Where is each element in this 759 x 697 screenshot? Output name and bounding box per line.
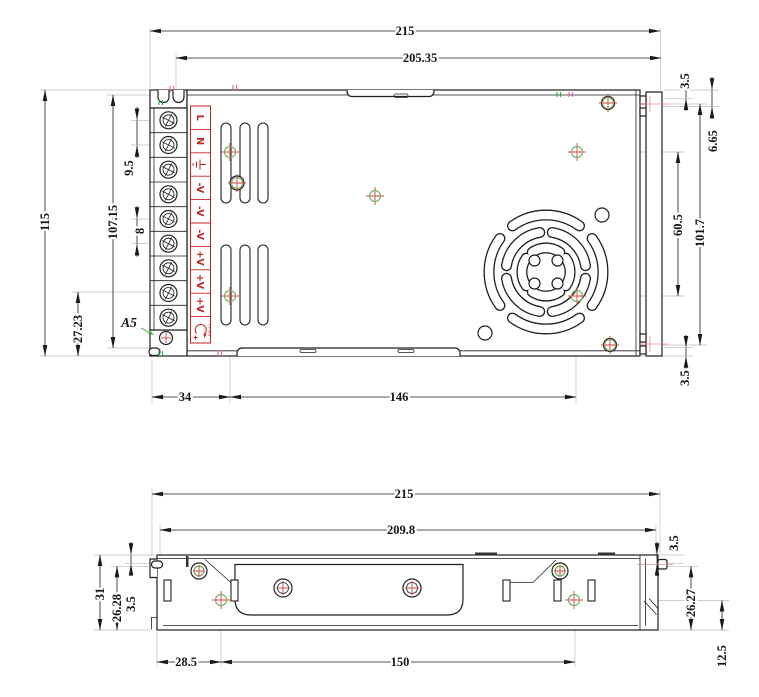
terminal-label-N: N	[194, 137, 205, 145]
terminal-block	[150, 108, 187, 330]
dim-overall-width-side: 215	[395, 487, 414, 501]
dim-bottom-offset-side: 28.5	[175, 655, 197, 669]
cover-tab	[598, 553, 615, 556]
dim-right-notch: 3.5	[667, 535, 681, 551]
callout-a5: A5	[120, 315, 137, 330]
cover-edge-mark	[186, 556, 189, 567]
dim-left-notch: 3.5	[124, 596, 138, 612]
dim-right-notch-top: 3.5	[678, 73, 692, 89]
technical-drawing-canvas: L N -V -V -V +V +V +V +V ADJ	[0, 0, 759, 697]
terminal-label-vminus: -V	[194, 229, 205, 240]
adjust-label: +V ADJ	[208, 324, 212, 337]
dim-input-pitch: 9.5	[122, 160, 136, 176]
dim-top-hole-offset: 6.65	[706, 130, 720, 152]
dim-mount-width-side: 209.8	[387, 523, 415, 537]
chassis-outline-side	[150, 553, 673, 631]
terminal-label-vplus: +V	[194, 274, 205, 290]
mount-notch	[158, 90, 169, 103]
end-panel-tab	[640, 108, 646, 116]
side-slot	[231, 580, 238, 601]
dim-mount-width: 205.35	[403, 51, 437, 65]
side-slot	[164, 580, 171, 601]
side-slot	[588, 580, 595, 601]
end-panel-tab	[640, 96, 646, 104]
dim-right-offset: 12.5	[715, 645, 729, 667]
dim-output-pitch: 8	[133, 228, 147, 234]
side-slot	[503, 580, 510, 601]
side-view: 215 209.8 31 26.28 3.5 3.5 26.27 12.5 28…	[93, 487, 729, 669]
top-view: L N -V -V -V +V +V +V +V ADJ	[38, 24, 720, 404]
end-panel-tab	[640, 346, 646, 354]
terminal-label-L: L	[194, 115, 205, 121]
dim-overall-width: 215	[396, 24, 415, 38]
dim-right-notch-bottom: 3.5	[678, 370, 692, 386]
dim-right-height: 26.27	[684, 589, 698, 617]
dim-side-hole-span: 101.7	[693, 219, 707, 247]
dim-bottom-hole-span: 146	[390, 390, 409, 404]
bottom-handle-recess	[237, 348, 460, 356]
terminal-label-vminus: -V	[194, 183, 205, 194]
top-handle-recess	[347, 90, 434, 97]
phillips-screw-icon	[160, 112, 177, 326]
flange-slot	[152, 561, 163, 568]
dim-bottom-hole-span-side: 150	[391, 655, 410, 669]
side-slot	[554, 580, 561, 601]
dim-ground-offset: 27.23	[71, 315, 85, 343]
end-panel	[646, 92, 662, 356]
dim-mount-height: 107.15	[106, 205, 120, 239]
dim-overall-height: 115	[38, 213, 52, 231]
terminal-label-vminus: -V	[194, 206, 205, 217]
dim-left-height: 26.28	[110, 594, 124, 622]
mount-notch	[173, 90, 184, 103]
dim-fan-hole-span: 60.5	[671, 214, 685, 236]
outline-drawing-svg: L N -V -V -V +V +V +V +V ADJ	[0, 0, 759, 697]
bottom-slot	[149, 348, 160, 356]
terminal-label-vplus: +V	[194, 250, 205, 266]
end-panel-tab	[640, 334, 646, 342]
dim-overall-height-side: 31	[93, 588, 107, 601]
bottom-step	[152, 618, 158, 630]
dim-bottom-offset: 34	[179, 390, 192, 404]
cover-tab	[475, 553, 497, 556]
terminal-label-vplus: +V	[194, 297, 205, 313]
